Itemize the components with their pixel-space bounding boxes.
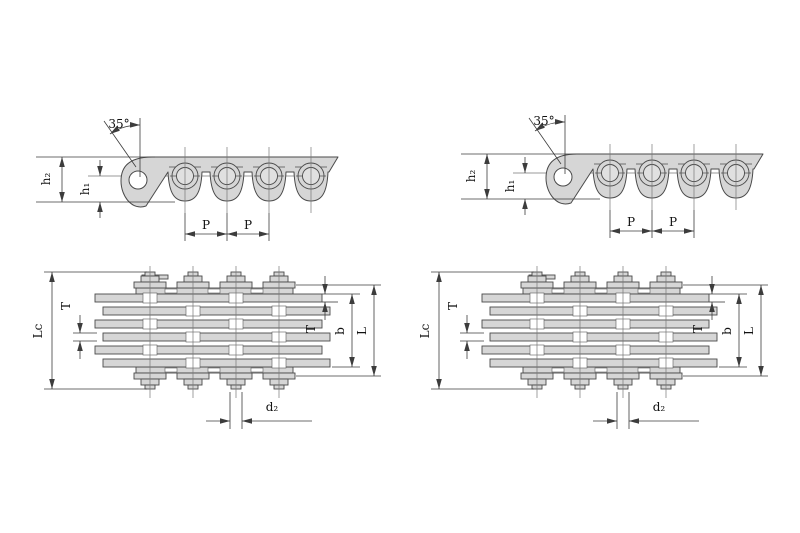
dim-label-t: T: [691, 325, 705, 333]
plan-view-left-art: [95, 266, 330, 398]
dim-label-angle: 35°: [533, 114, 554, 128]
dim-label-t: T: [446, 302, 460, 310]
dim-label-b: b: [720, 327, 734, 335]
dim-label-pitch: P: [244, 218, 252, 232]
leaf-chain-technical-drawing: h₂ h₁ 35° P P h₂ h₁ 35° P P: [0, 0, 800, 533]
dim-label-h1: h₁: [503, 180, 517, 193]
dim-label-pitch: P: [202, 218, 210, 232]
dim-label-angle: 35°: [108, 117, 129, 131]
dim-label-t: T: [59, 302, 73, 310]
dim-label-h1: h₁: [78, 183, 92, 196]
dim-label-d2: d₂: [653, 400, 666, 414]
dim-label-t: T: [304, 325, 318, 333]
dim-label-h2: h₂: [464, 170, 478, 183]
dim-label-pitch: P: [669, 215, 677, 229]
dim-label-d2: d₂: [266, 400, 279, 414]
dim-label-b: b: [333, 327, 347, 335]
dim-label-l: L: [355, 327, 369, 335]
dim-label-h2: h₂: [39, 173, 53, 186]
dim-label-l: L: [742, 327, 756, 335]
dim-label-lc: Lc: [31, 323, 45, 338]
drawing-sheet: h₂ h₁ 35° P P h₂ h₁ 35° P P: [0, 0, 800, 533]
dim-label-pitch: P: [627, 215, 635, 229]
dim-label-lc: Lc: [418, 323, 432, 338]
plan-view-right-art: [482, 266, 717, 398]
